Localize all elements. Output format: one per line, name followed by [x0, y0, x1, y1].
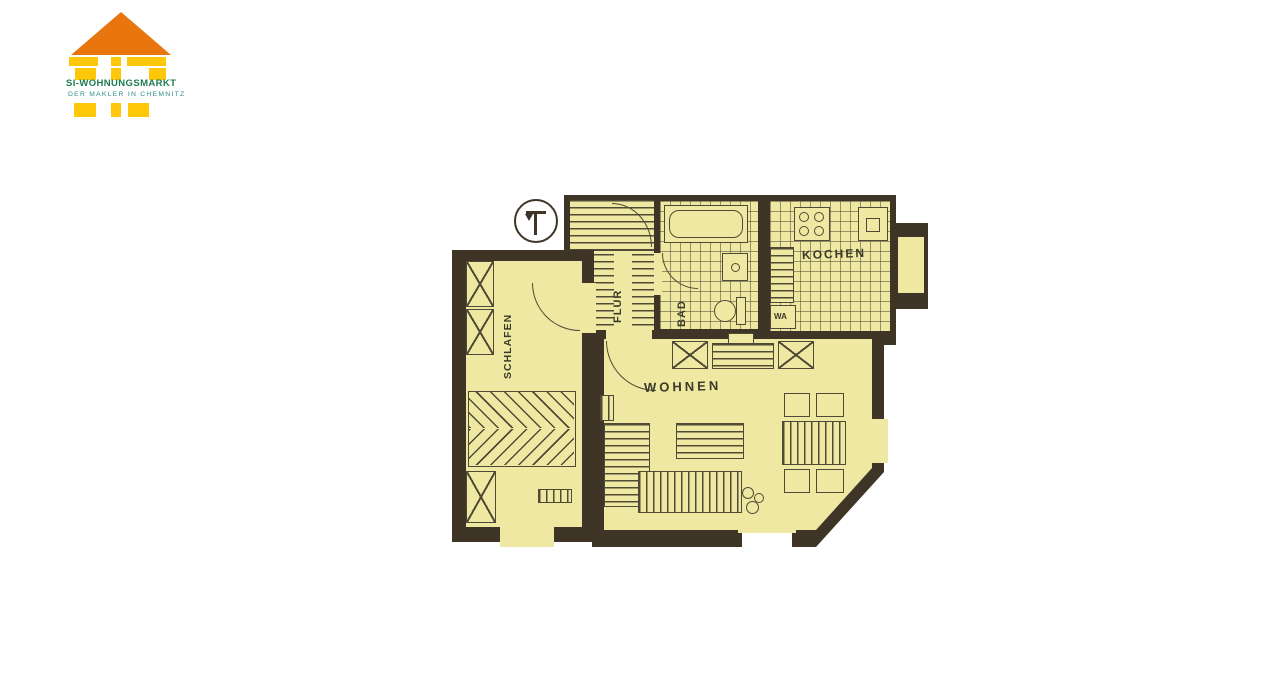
kitchen-window-sill: [898, 237, 924, 293]
logo-roof-icon: [71, 12, 171, 55]
flur-steps: [632, 254, 654, 326]
sideboard-icon: [672, 341, 708, 369]
flur-steps: [594, 254, 614, 326]
plant-icon: [740, 485, 774, 519]
door-opening: [606, 329, 652, 341]
stove-icon: [794, 207, 830, 241]
corner-sofa-icon: [638, 471, 742, 513]
door-opening: [654, 253, 662, 295]
logo-pillar: [111, 103, 121, 117]
north-circle-icon: [514, 199, 558, 243]
window-gap: [742, 533, 792, 547]
label-flur: FLUR: [612, 261, 624, 323]
logo-title: SI-WOHNUNGSMARKT: [66, 78, 186, 89]
wardrobe-icon: [466, 309, 494, 355]
logo-pillar: [69, 57, 98, 66]
label-schlafen: SCHLAFEN: [502, 275, 514, 379]
logo-pillar: [111, 57, 121, 66]
listing-image: { "logo": { "title": "SI-WOHNUNGSMARKT",…: [0, 0, 1280, 699]
schlafen-window-sill: [500, 521, 554, 547]
wardrobe-icon: [466, 471, 496, 523]
chair-icon: [784, 393, 810, 417]
label-wohnen: WOHNEN: [644, 378, 722, 395]
wohnen-window-sill: [858, 419, 888, 463]
double-bed-icon: [468, 391, 576, 467]
wardrobe-icon: [466, 261, 494, 307]
chair-icon: [784, 469, 810, 493]
logo-pillar: [128, 103, 149, 117]
chair-icon: [816, 393, 844, 417]
logo-pillar: [127, 57, 166, 66]
kitchen-counter: [770, 247, 794, 303]
washing-machine-icon: WA: [770, 305, 796, 329]
washbasin-icon: [722, 253, 748, 281]
wohnen-window-sill: [738, 525, 796, 533]
sideboard-icon: [778, 341, 814, 369]
radiator-icon: [538, 489, 572, 503]
wc-icon: [714, 297, 746, 325]
kitchen-sink-icon: [858, 207, 888, 241]
label-bad: BAD: [676, 283, 688, 327]
coffee-table-icon: [676, 423, 744, 459]
desk-icon: [712, 343, 774, 369]
bathtub-icon: [664, 205, 748, 243]
door-opening: [578, 283, 596, 333]
logo-subtitle: DER MAKLER IN CHEMNITZ: [68, 91, 188, 98]
dining-table-icon: [782, 421, 846, 465]
radiator-icon: [600, 395, 614, 421]
logo-pillar: [74, 103, 96, 117]
label-kochen: KOCHEN: [802, 246, 866, 262]
company-logo: SI-WOHNUNGSMARKT DER MAKLER IN CHEMNITZ: [60, 5, 190, 125]
chair-icon: [816, 469, 844, 493]
label-wa: WA: [774, 312, 787, 321]
floor-plan: FLUR BAD WA KOCHEN SCHLAFEN: [452, 195, 930, 560]
